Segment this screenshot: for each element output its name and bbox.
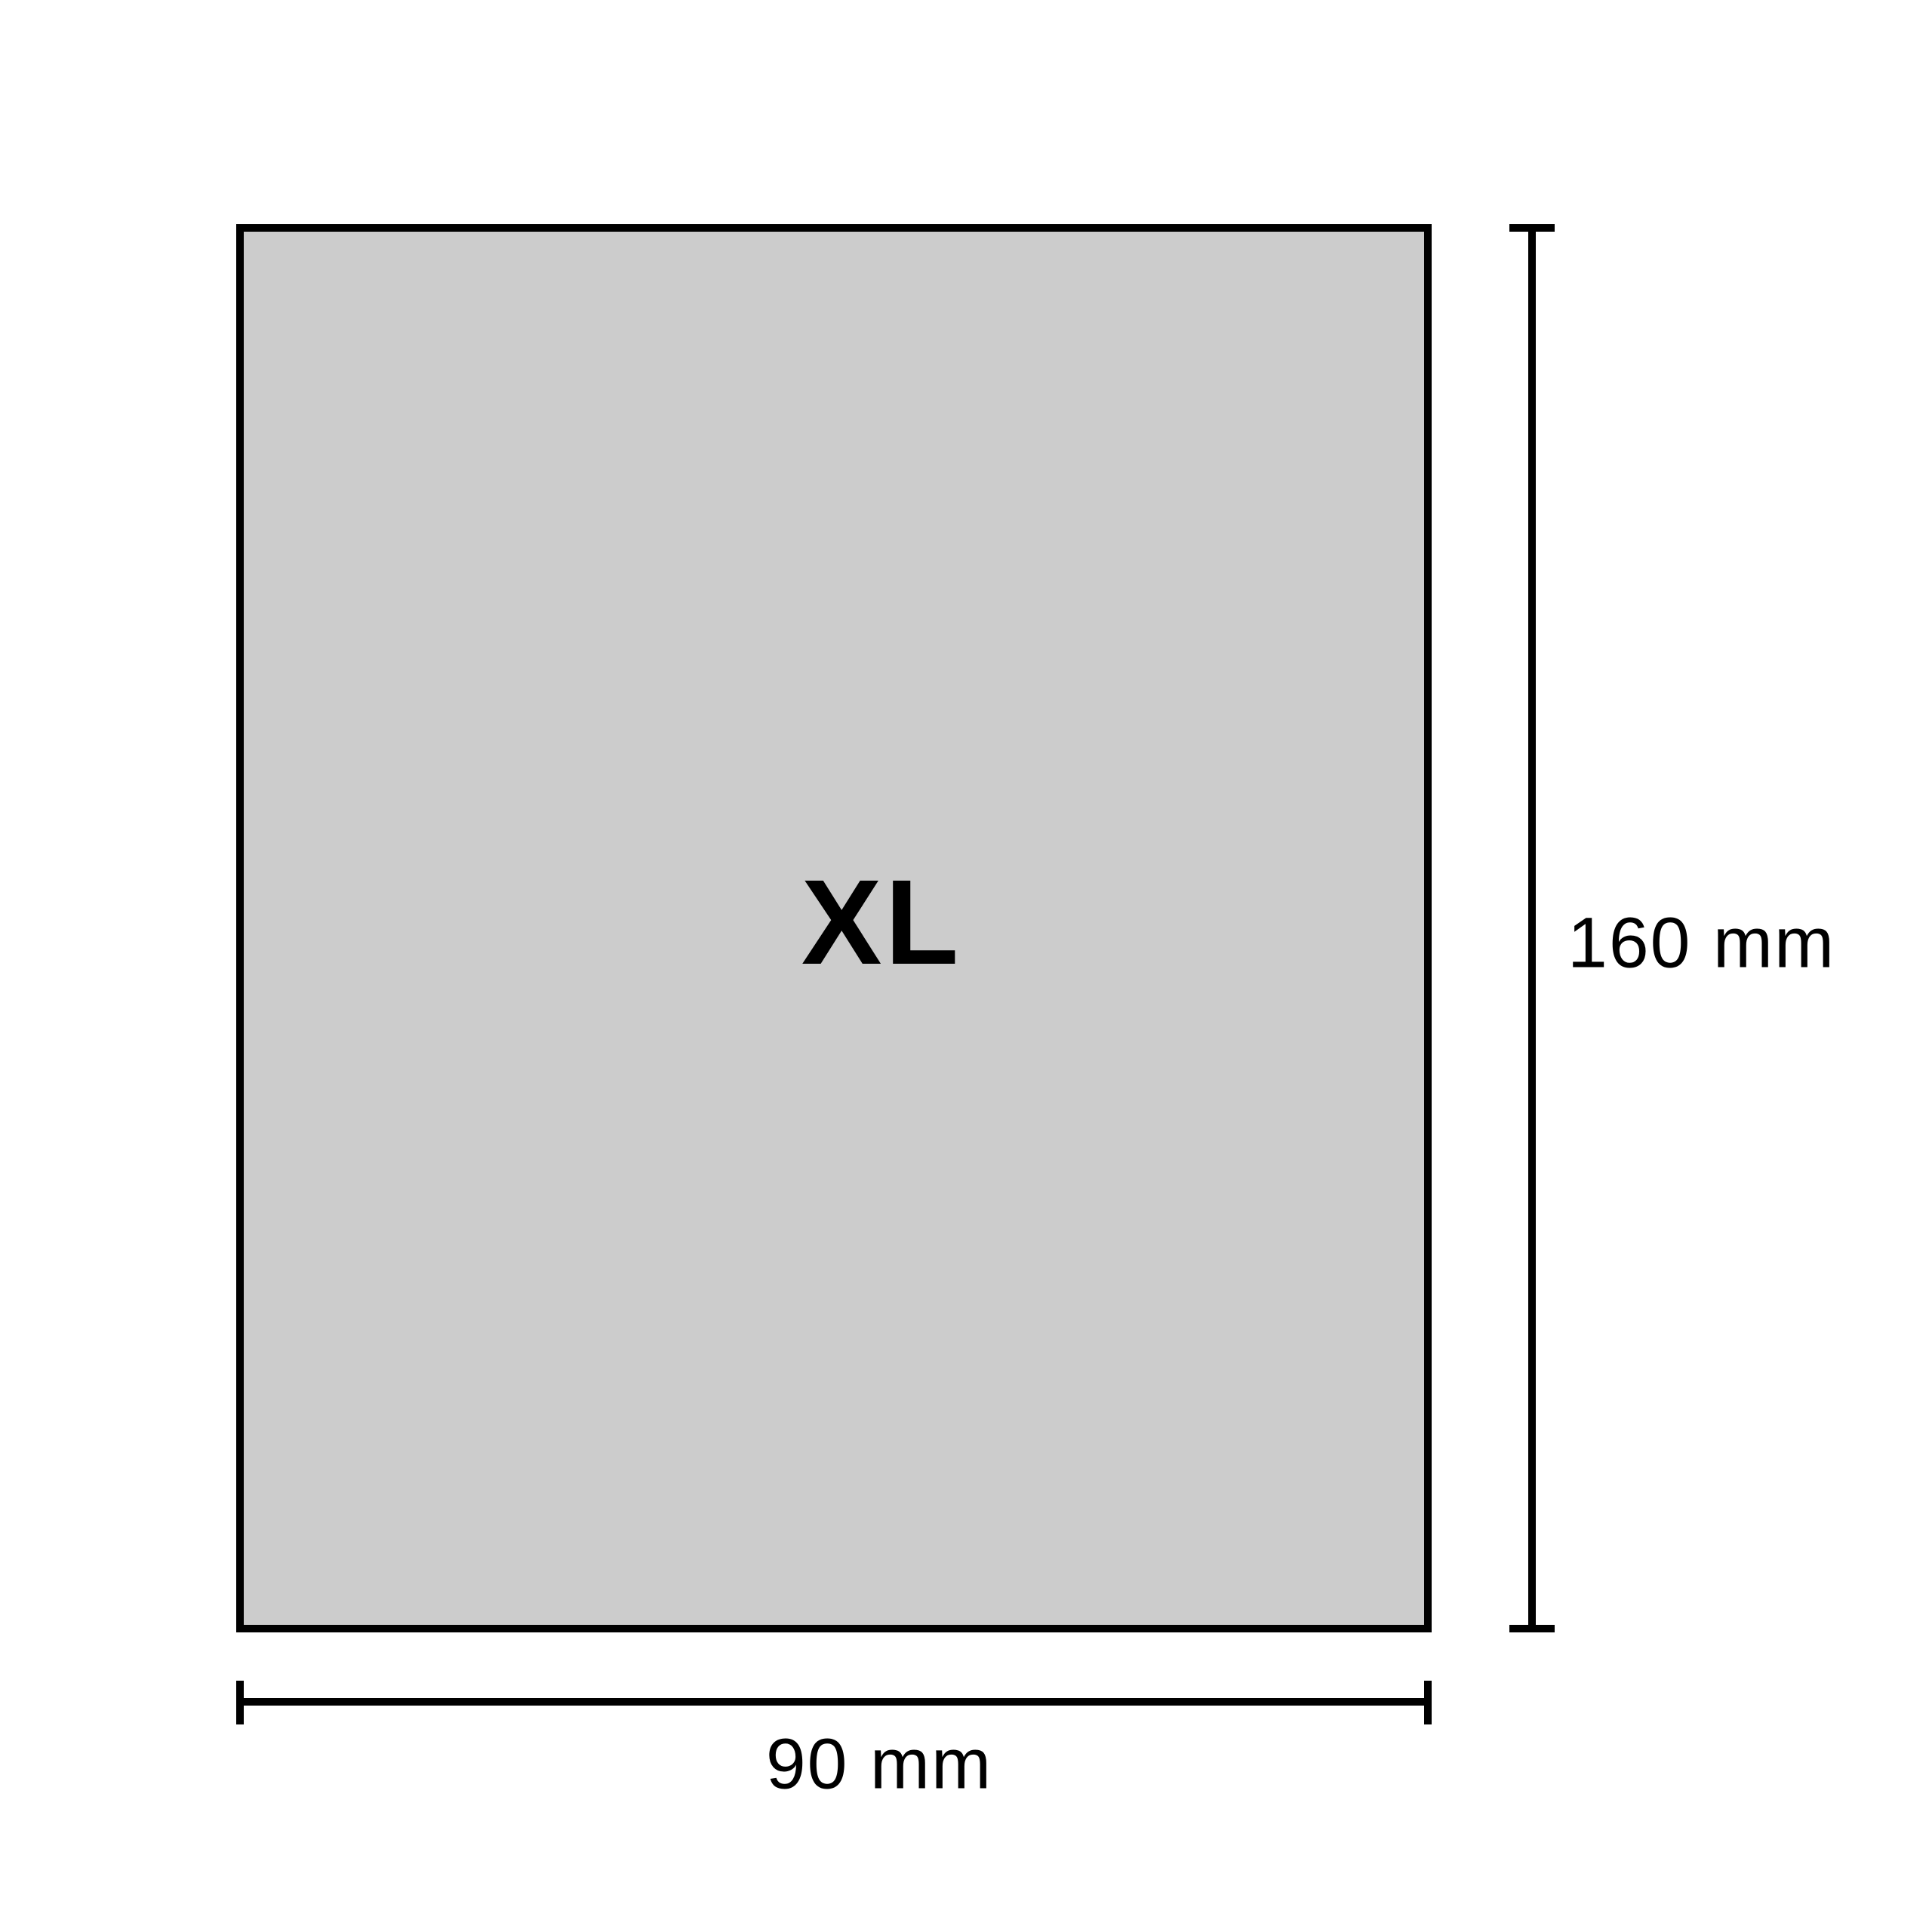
height-dimension-line <box>1528 224 1536 1632</box>
width-dimension-tick-left <box>236 1681 244 1724</box>
width-dimension-line <box>236 1698 1432 1706</box>
height-dimension-label: 160 mm <box>1567 908 1835 980</box>
width-dimension-label: 90 mm <box>766 1729 992 1801</box>
height-dimension-cap-top <box>1509 224 1555 232</box>
size-name-label: XL <box>801 862 961 983</box>
width-dimension-tick-right <box>1424 1681 1432 1724</box>
height-dimension-cap-bottom <box>1509 1625 1555 1632</box>
size-diagram: XL 160 mm 90 mm <box>0 0 1932 1932</box>
